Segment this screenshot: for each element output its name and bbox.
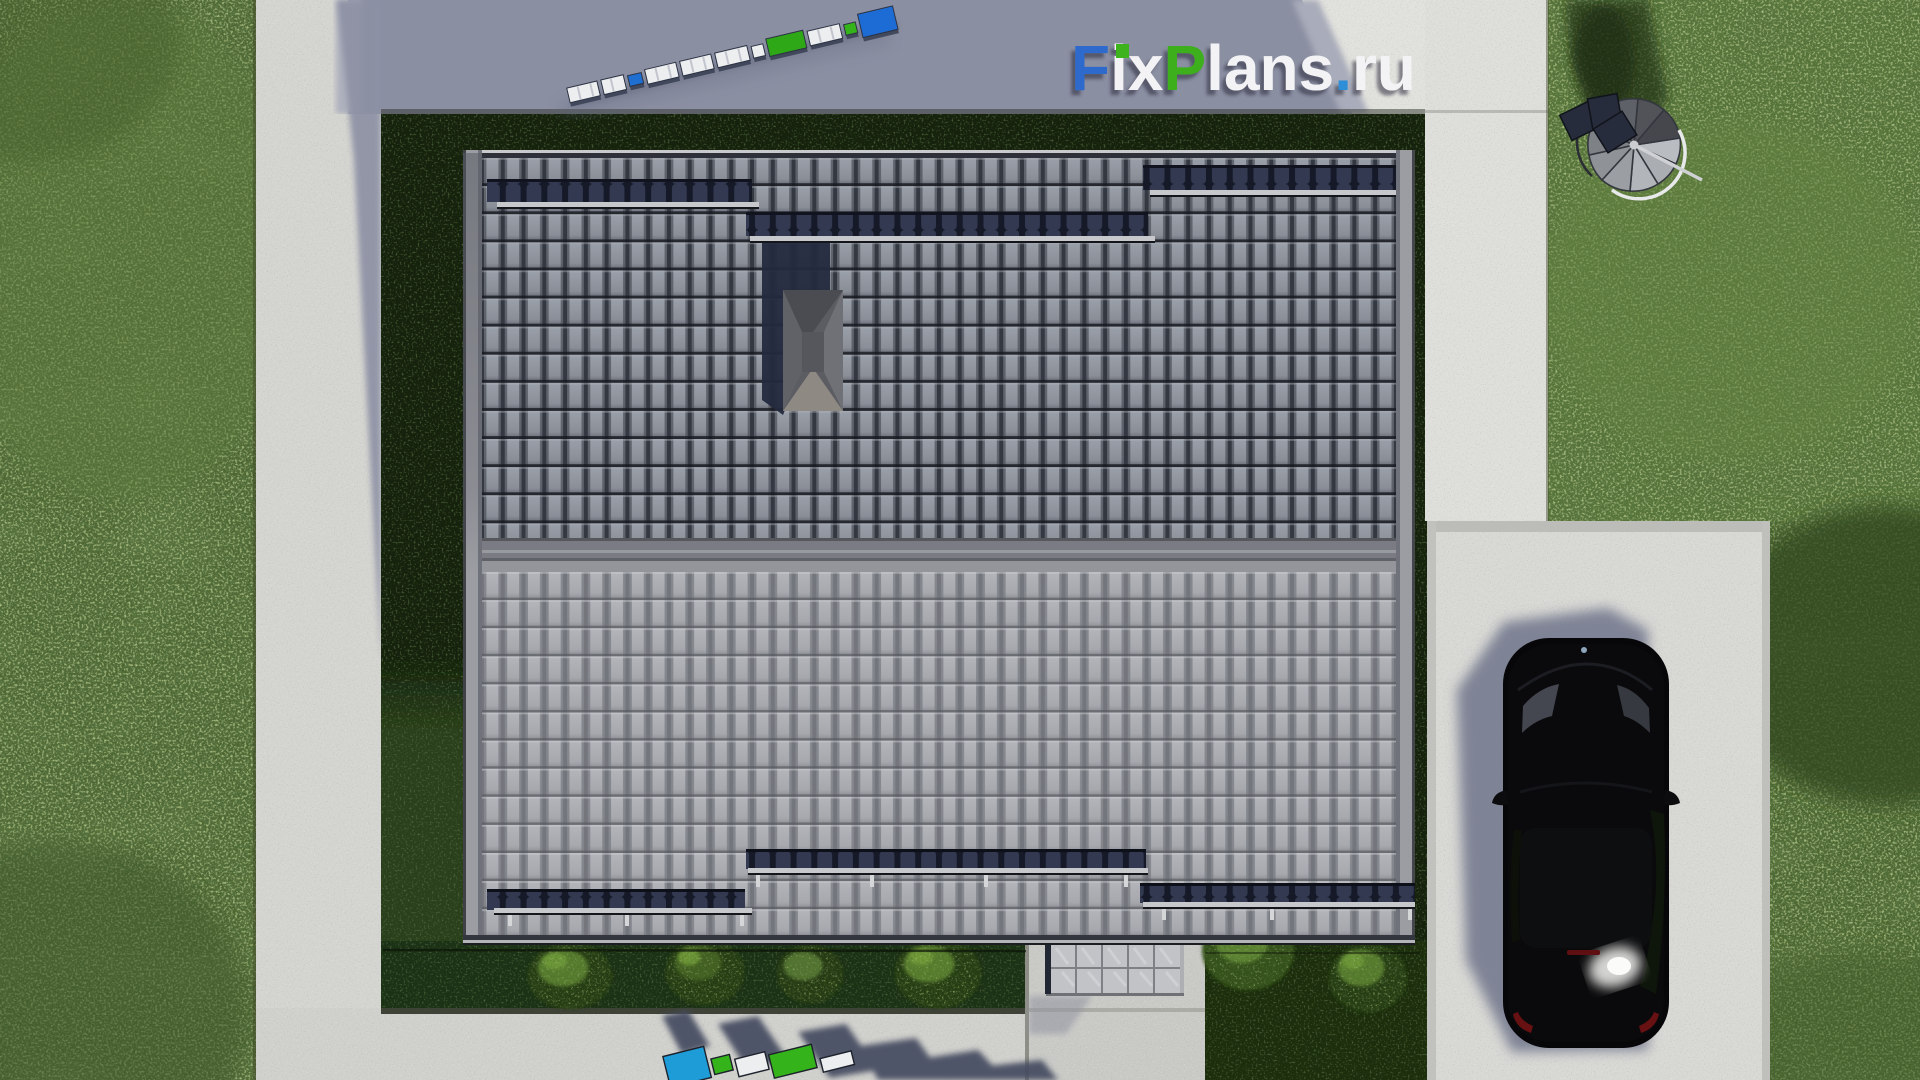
svg-text:FixPlans.ru: FixPlans.ru [1071,32,1416,104]
